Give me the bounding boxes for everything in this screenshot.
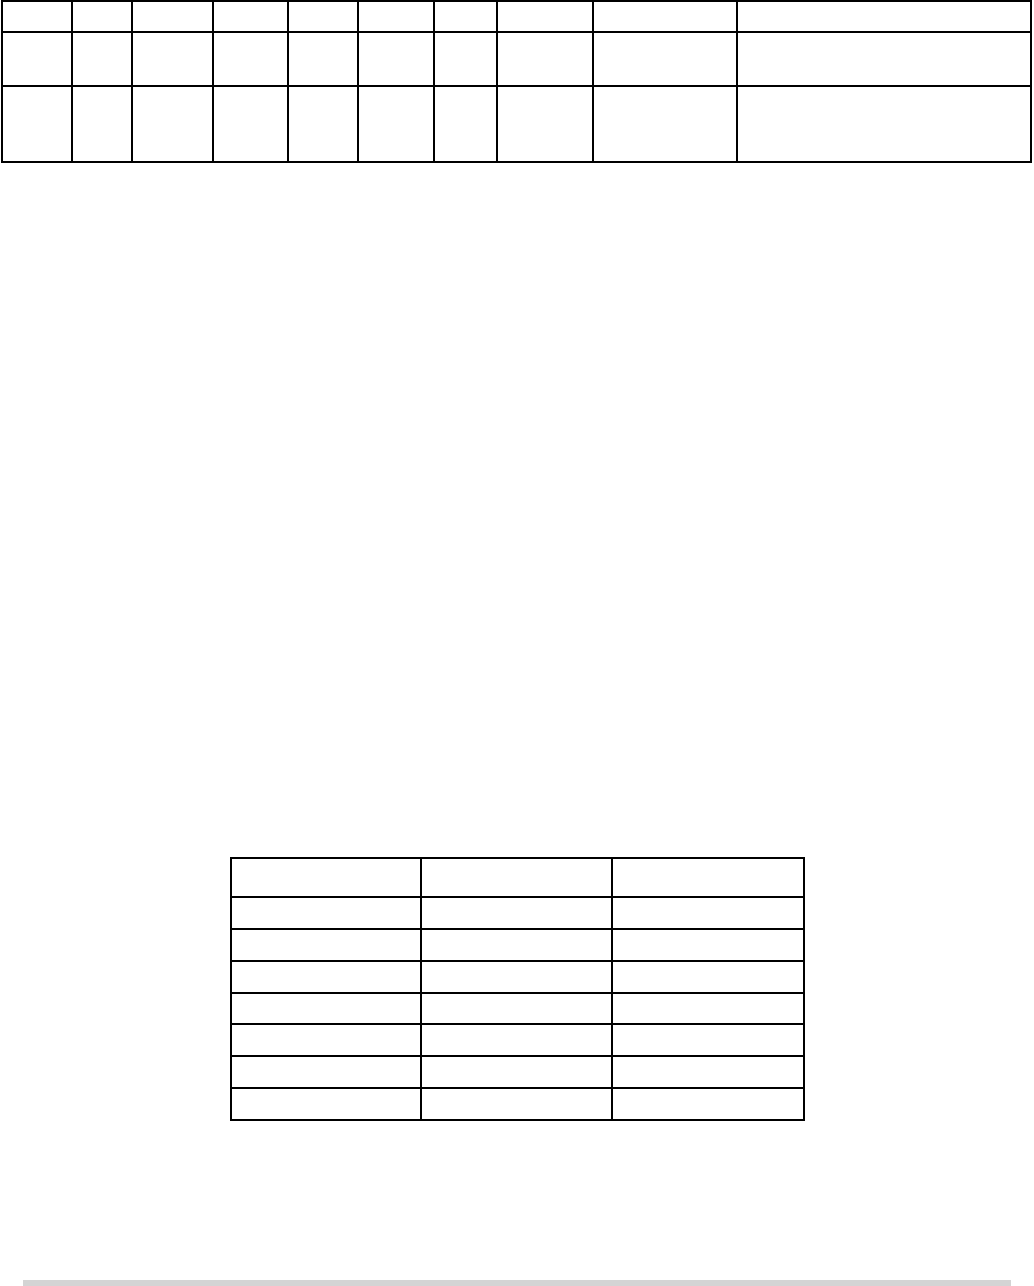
table-cell	[612, 897, 804, 929]
table-cell	[231, 993, 421, 1024]
table-cell	[72, 1, 132, 32]
table-cell	[213, 86, 288, 162]
middle-table	[230, 857, 805, 1121]
table-cell	[612, 1088, 804, 1120]
table-cell	[213, 32, 288, 86]
table-cell	[612, 1024, 804, 1056]
table-cell	[132, 32, 213, 86]
table-cell	[434, 86, 497, 162]
table-cell	[737, 86, 1031, 162]
table-row	[231, 897, 804, 929]
table-cell	[421, 1024, 612, 1056]
table-row	[2, 32, 1031, 86]
table-cell	[358, 86, 434, 162]
table-cell	[421, 858, 612, 897]
table-cell	[421, 1088, 612, 1120]
table-cell	[2, 1, 72, 32]
table-cell	[288, 32, 358, 86]
top-table	[1, 0, 1032, 163]
table-cell	[72, 86, 132, 162]
table-cell	[132, 1, 213, 32]
table-cell	[593, 86, 737, 162]
table-row	[231, 1056, 804, 1088]
table-row	[231, 929, 804, 961]
table-cell	[231, 929, 421, 961]
table-cell	[288, 86, 358, 162]
table-cell	[231, 1088, 421, 1120]
table-cell	[421, 1056, 612, 1088]
table-cell	[288, 1, 358, 32]
table-cell	[612, 929, 804, 961]
table-cell	[231, 961, 421, 993]
table-row	[231, 993, 804, 1024]
table-cell	[231, 1056, 421, 1088]
table-grid	[230, 857, 805, 1121]
table-cell	[737, 32, 1031, 86]
table-cell	[231, 1024, 421, 1056]
table-row	[231, 1024, 804, 1056]
table-cell	[612, 961, 804, 993]
table-row	[231, 1088, 804, 1120]
table-cell	[231, 858, 421, 897]
table-cell	[737, 1, 1031, 32]
table-cell	[593, 1, 737, 32]
table-cell	[434, 32, 497, 86]
table-grid	[1, 0, 1032, 163]
table-cell	[612, 858, 804, 897]
footer-bar	[23, 1280, 1011, 1286]
table-cell	[72, 32, 132, 86]
table-cell	[497, 1, 593, 32]
table-cell	[434, 1, 497, 32]
table-cell	[421, 993, 612, 1024]
table-row	[231, 961, 804, 993]
table-cell	[213, 1, 288, 32]
table-cell	[421, 929, 612, 961]
table-cell	[421, 897, 612, 929]
table-row	[2, 86, 1031, 162]
table-cell	[497, 32, 593, 86]
table-cell	[358, 1, 434, 32]
table-cell	[132, 86, 213, 162]
table-cell	[612, 1056, 804, 1088]
table-cell	[593, 32, 737, 86]
table-cell	[231, 897, 421, 929]
table-cell	[2, 32, 72, 86]
table-row	[231, 858, 804, 897]
table-row	[2, 1, 1031, 32]
table-cell	[497, 86, 593, 162]
table-cell	[612, 993, 804, 1024]
table-cell	[421, 961, 612, 993]
table-cell	[358, 32, 434, 86]
table-cell	[2, 86, 72, 162]
